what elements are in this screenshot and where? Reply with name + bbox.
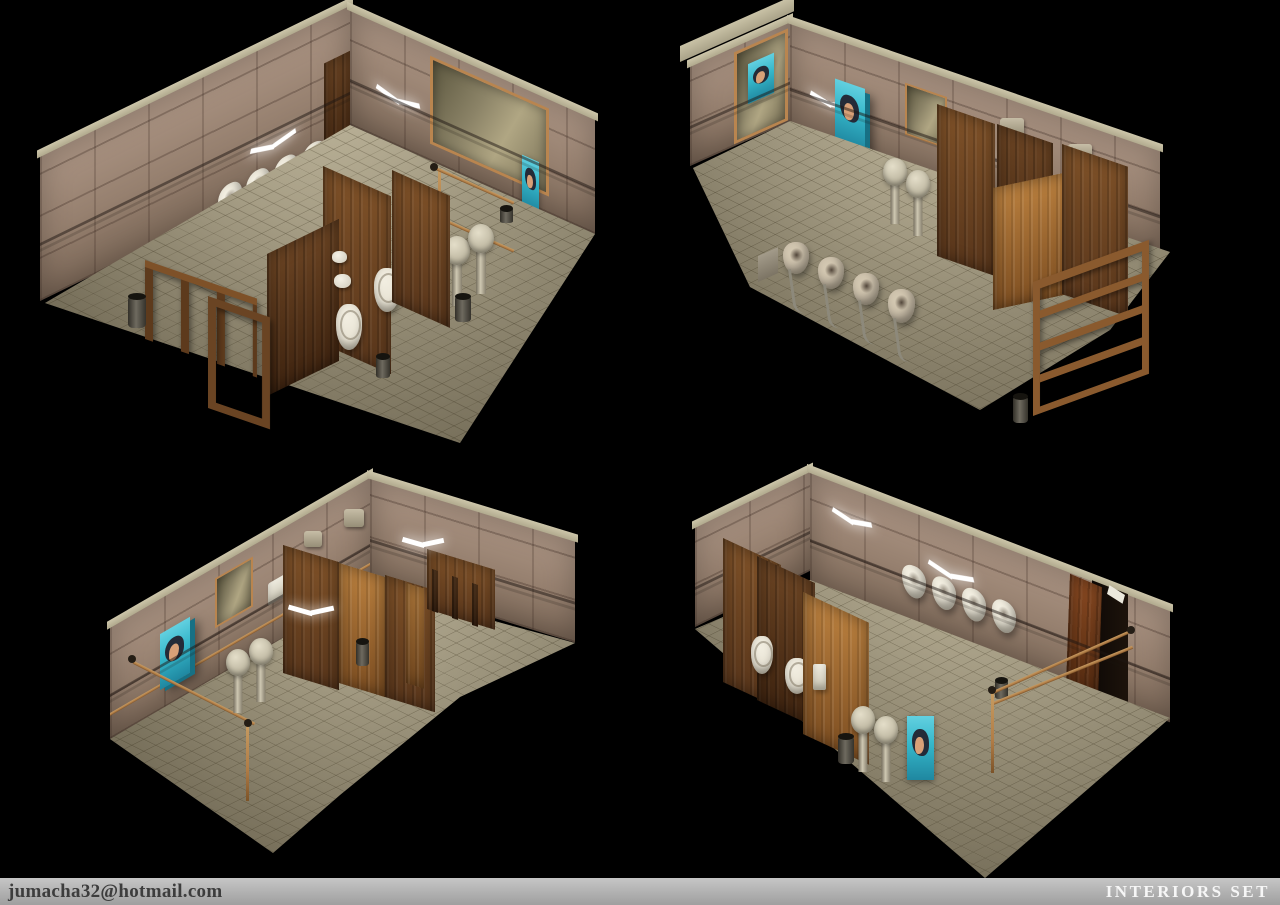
pedestal-sink xyxy=(874,716,898,782)
urinal xyxy=(783,242,809,274)
wall-light-icon xyxy=(288,603,334,619)
pedestal-sink xyxy=(851,706,875,772)
wall-light-icon xyxy=(402,535,444,551)
wall-light-icon xyxy=(376,82,420,118)
trash-can xyxy=(376,356,390,378)
urinal xyxy=(818,257,844,289)
mirror xyxy=(215,556,253,628)
wood-door-frame xyxy=(208,296,270,429)
trash-can xyxy=(838,736,854,764)
stall-partition xyxy=(937,104,995,276)
trash-can xyxy=(356,641,369,666)
artist-email: jumacha32@hotmail.com xyxy=(8,878,222,905)
pedestal-sink xyxy=(883,158,907,224)
trash-can xyxy=(455,296,471,322)
copper-pipe xyxy=(246,723,249,801)
toilet-paper-roll xyxy=(332,251,347,263)
toilet-paper-roll xyxy=(334,274,351,288)
caption-bar: jumacha32@hotmail.com INTERIORS SET xyxy=(0,878,1280,905)
render-view-top-right xyxy=(680,20,1195,435)
pipe-knob xyxy=(988,686,996,694)
pipe-knob xyxy=(430,163,438,171)
banner-poster xyxy=(907,716,934,780)
urinal-screen xyxy=(452,576,458,620)
render-view-bottom-right xyxy=(695,450,1245,880)
stall-door xyxy=(339,563,385,697)
bucket xyxy=(500,208,513,223)
pedestal-sink xyxy=(906,170,930,236)
stall-door-open xyxy=(406,583,424,689)
pedestal-sink xyxy=(226,649,250,713)
copper-pipe xyxy=(991,693,994,773)
pipe-knob xyxy=(244,719,252,727)
trash-can xyxy=(1013,396,1028,423)
urinal-screen xyxy=(472,583,478,627)
pipe-knob xyxy=(1127,626,1135,634)
stall-partition xyxy=(392,170,450,328)
urinal xyxy=(853,273,879,305)
pedestal-sink xyxy=(249,638,273,702)
pipe-knob xyxy=(128,655,136,663)
paper-towel-dispenser xyxy=(813,664,826,690)
toilet-tank xyxy=(344,509,364,527)
set-title: INTERIORS SET xyxy=(1106,878,1270,905)
pedestal-sink xyxy=(468,224,494,294)
render-view-bottom-left xyxy=(110,455,590,880)
urinal xyxy=(992,596,1016,637)
urinal xyxy=(902,561,926,602)
render-sheet: jumacha32@hotmail.com INTERIORS SET xyxy=(0,0,1280,905)
trash-can xyxy=(128,296,146,328)
toilet-tank xyxy=(304,531,322,547)
urinal xyxy=(962,584,986,625)
urinal-screen xyxy=(432,569,438,613)
render-view-top-left xyxy=(40,8,600,445)
wall-light-icon xyxy=(832,504,872,535)
